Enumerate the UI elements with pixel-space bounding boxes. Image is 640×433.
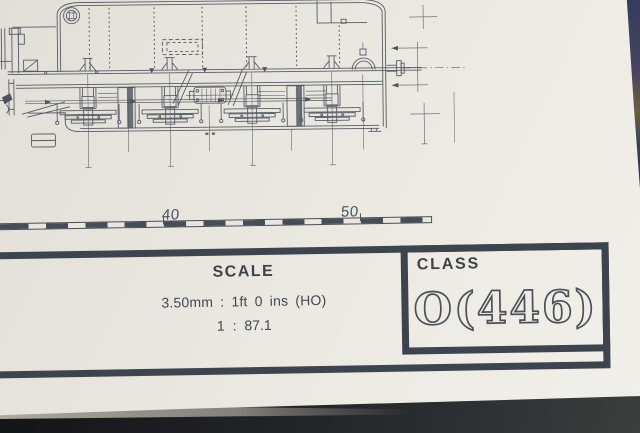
photo-of-drawing-sheet: 40 50 SCALE 3.50mm : 1ft 0 ins (HO) 1 : …	[0, 0, 640, 433]
scale-heading: SCALE	[151, 262, 336, 283]
paper-sheet: 40 50 SCALE 3.50mm : 1ft 0 ins (HO) 1 : …	[0, 0, 640, 433]
class-value: O(446)	[408, 285, 603, 332]
class-heading: CLASS	[417, 255, 481, 274]
scale-ruler-bar	[0, 216, 432, 230]
sheet-lower-content: 40 50 SCALE 3.50mm : 1ft 0 ins (HO) 1 : …	[0, 0, 640, 433]
ruler-label-40: 40	[161, 206, 180, 223]
ruler-tick-50	[359, 213, 360, 221]
ruler-label-50: 50	[340, 203, 359, 220]
